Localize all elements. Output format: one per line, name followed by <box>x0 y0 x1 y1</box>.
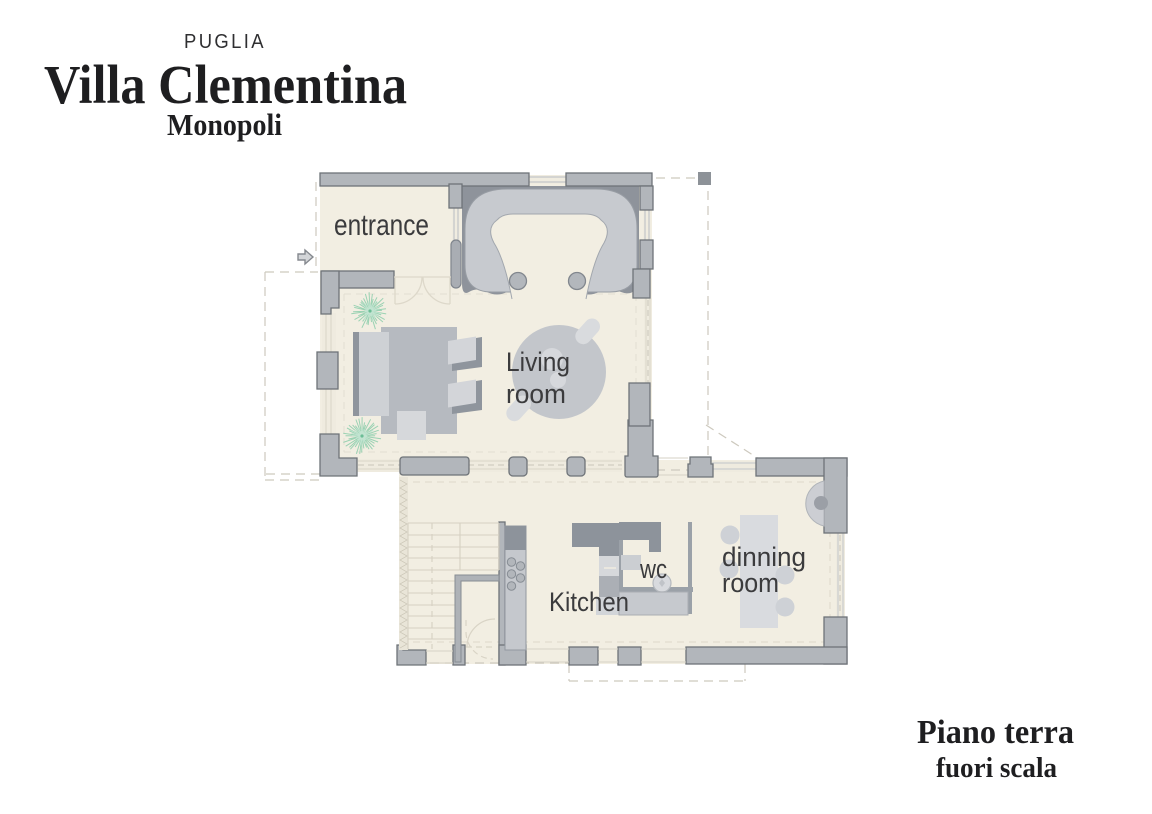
svg-text:Living: Living <box>506 347 570 377</box>
svg-text:entrance: entrance <box>334 209 429 242</box>
svg-text:Kitchen: Kitchen <box>549 587 629 617</box>
svg-text:PUGLIA: PUGLIA <box>184 31 266 53</box>
svg-text:Piano terra: Piano terra <box>917 714 1074 751</box>
svg-text:Monopoli: Monopoli <box>167 107 282 142</box>
svg-text:Villa Clementina: Villa Clementina <box>44 54 407 115</box>
svg-text:room: room <box>722 568 779 598</box>
svg-text:room: room <box>506 379 566 409</box>
svg-text:fuori scala: fuori scala <box>936 752 1057 784</box>
svg-text:wc: wc <box>639 554 667 584</box>
